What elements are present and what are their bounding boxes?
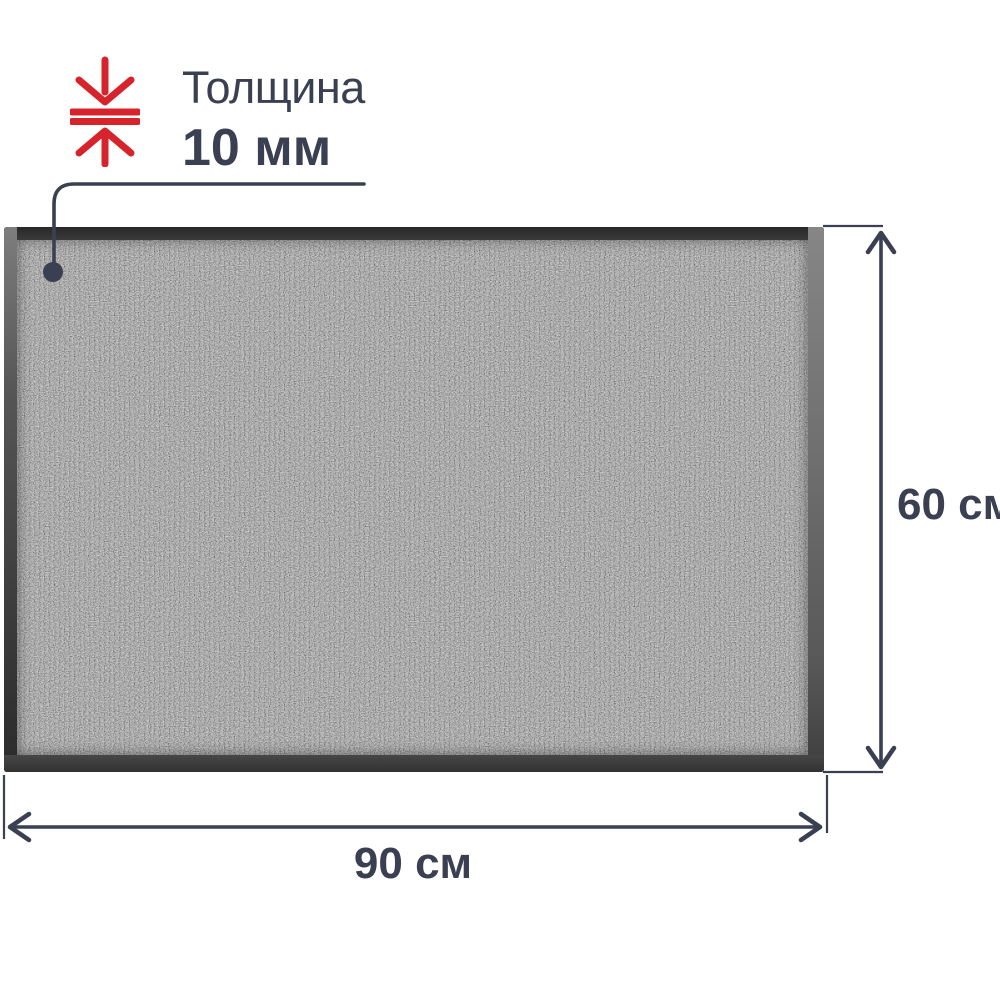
thickness-value: 10 мм bbox=[182, 122, 331, 174]
product-infographic: Толщина 10 мм 60 см 90 см bbox=[0, 0, 1000, 1000]
thickness-compress-icon bbox=[70, 52, 140, 167]
width-arrowhead-right bbox=[801, 814, 820, 840]
width-dimension-arrow bbox=[4, 775, 827, 840]
mat-rubber-edge-left bbox=[4, 227, 17, 772]
height-arrowhead-up bbox=[868, 233, 894, 252]
mat-rubber-edge-bottom bbox=[4, 755, 824, 772]
carpet-edge-shade bbox=[17, 239, 808, 755]
height-arrowhead-down bbox=[868, 748, 894, 767]
thickness-label: Толщина bbox=[182, 65, 365, 110]
mat-rubber-edge-top bbox=[4, 227, 824, 240]
width-dimension-label: 90 см bbox=[313, 842, 513, 886]
mat-carpet-surface bbox=[17, 239, 808, 755]
doormat-image bbox=[4, 227, 824, 772]
width-arrowhead-left bbox=[10, 814, 29, 840]
height-dimension-label: 60 см bbox=[897, 483, 1000, 527]
height-dimension-arrow bbox=[823, 226, 894, 772]
mat-rubber-edge-right bbox=[808, 227, 824, 772]
